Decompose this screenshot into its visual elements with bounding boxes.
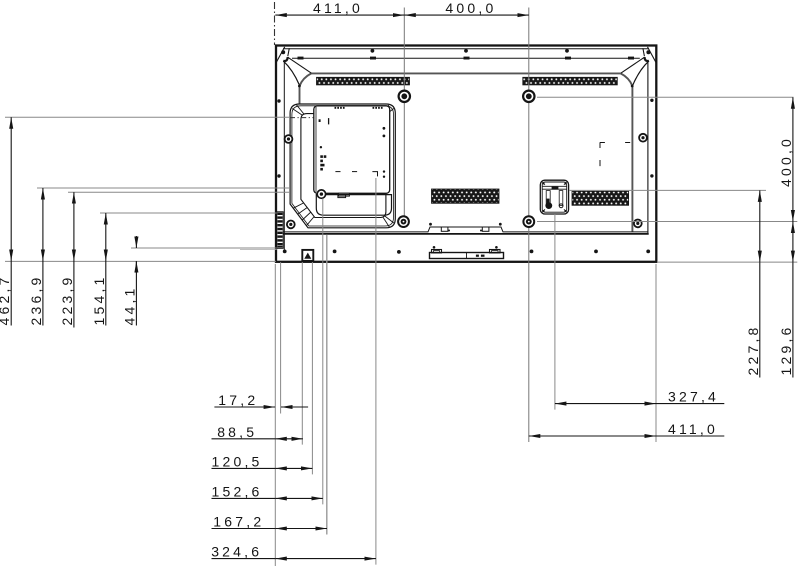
svg-text:400,0: 400,0 <box>445 0 496 16</box>
svg-text:327,4: 327,4 <box>668 388 719 404</box>
svg-text:227,8: 227,8 <box>745 324 761 375</box>
svg-text:411,0: 411,0 <box>313 0 363 16</box>
svg-text:120,5: 120,5 <box>212 453 263 469</box>
svg-text:17,2: 17,2 <box>218 392 258 408</box>
svg-text:154,1: 154,1 <box>91 274 107 325</box>
svg-text:324,6: 324,6 <box>211 544 262 560</box>
svg-text:223,9: 223,9 <box>59 274 75 325</box>
svg-text:88,5: 88,5 <box>217 424 257 440</box>
svg-text:236,9: 236,9 <box>28 274 44 325</box>
svg-text:400,0: 400,0 <box>778 136 794 187</box>
svg-text:411,0: 411,0 <box>668 421 718 437</box>
svg-text:129,6: 129,6 <box>778 324 794 375</box>
svg-text:462,7: 462,7 <box>0 274 12 325</box>
svg-text:152,6: 152,6 <box>212 483 263 499</box>
svg-text:167,2: 167,2 <box>213 514 264 530</box>
svg-text:44,1: 44,1 <box>121 285 137 325</box>
